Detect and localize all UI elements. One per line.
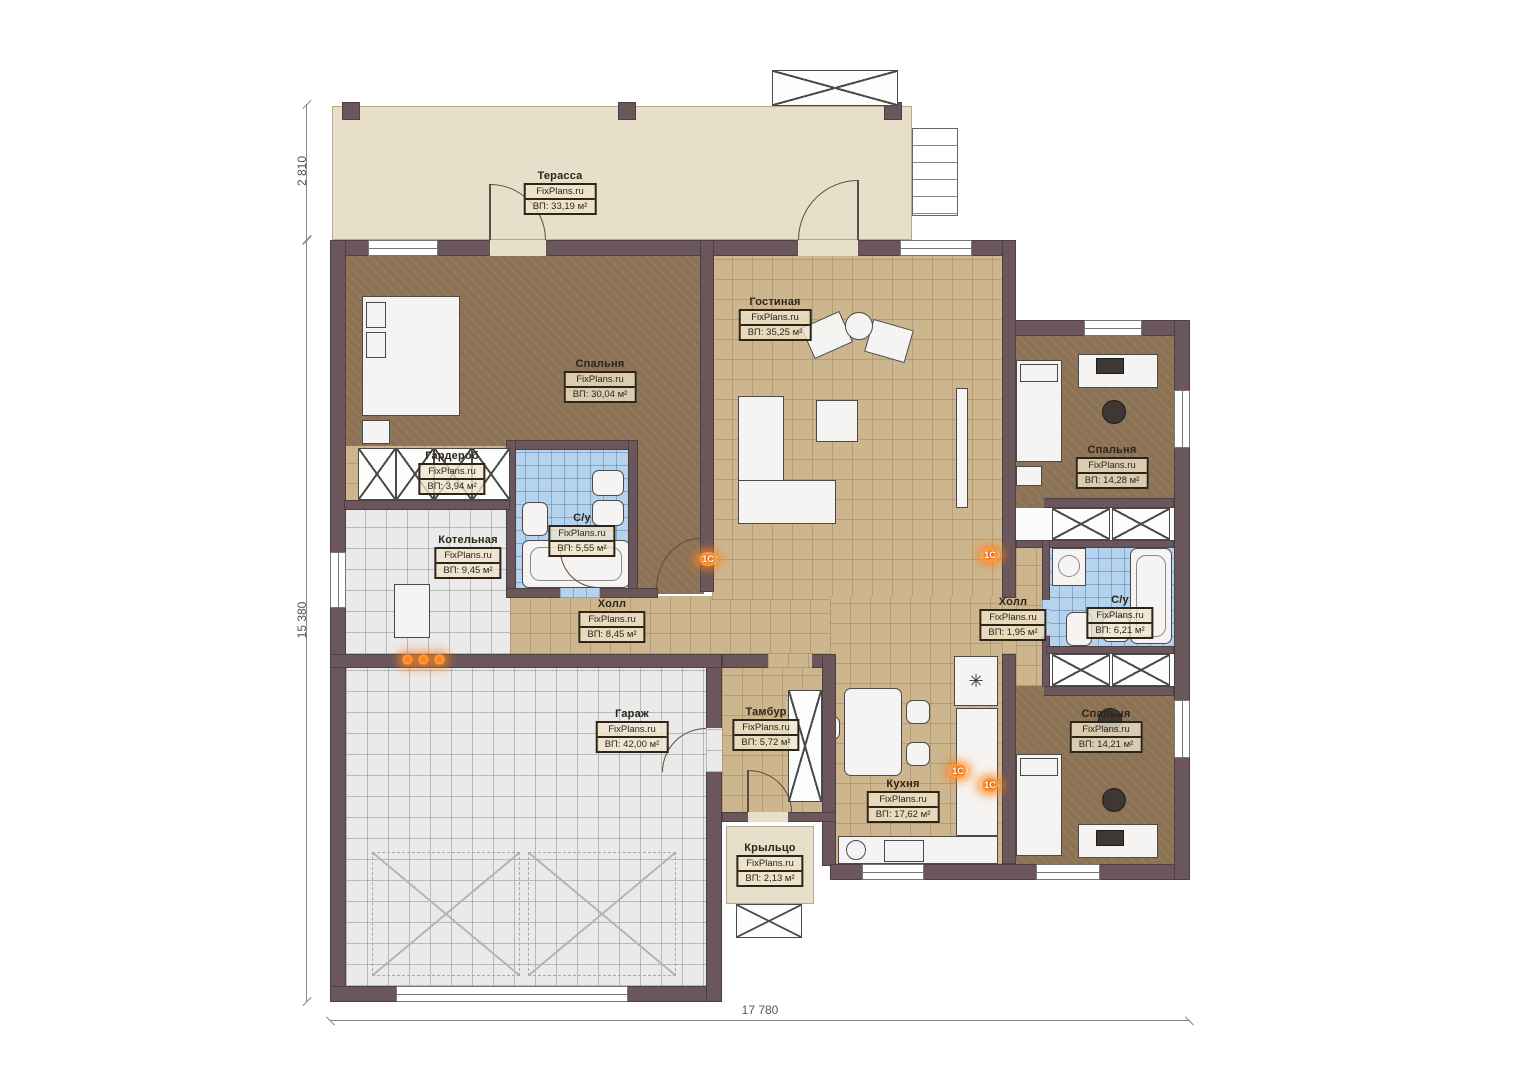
wall-divider-upper [1002,240,1016,598]
room-label-living: Гостиная FixPlans.ru ВП: 35,25 м² [739,296,812,341]
room-area: ВП: 42,00 м² [598,738,667,751]
room-name: Терасса [524,170,597,182]
kitchen-sink [846,840,866,860]
utility-marker: 1С [980,548,1000,562]
dimension-total-height: 15 380 [306,240,307,1002]
washer-drum [1058,555,1080,577]
brand-text: FixPlans.ru [738,857,801,872]
porch-steps [736,904,802,938]
window [330,552,346,608]
wall-bath1-top [506,440,638,450]
front-door-opening [748,812,788,822]
room-name: Гараж [596,708,669,720]
chair [906,742,930,766]
brand-text: FixPlans.ru [598,723,667,738]
room-area: ВП: 1,95 м² [981,626,1044,639]
room-name: Спальня [1070,708,1143,720]
boiler-unit [394,584,430,638]
pillow [366,302,386,328]
pillow [1020,364,1058,382]
parking-mark [528,852,676,976]
utility-marker: 1С [948,764,968,778]
pillow [1020,758,1058,776]
wall-closet-south [1016,540,1174,548]
closet [1052,654,1110,686]
window [1174,700,1190,758]
vestibule-opening [768,654,812,668]
brand-text: FixPlans.ru [526,185,595,200]
room-area: ВП: 5,55 м² [550,542,613,555]
coffee-table [816,400,858,442]
utility-marker [402,654,413,665]
room-label-garage: Гараж FixPlans.ru ВП: 42,00 м² [596,708,669,753]
fridge: ✳ [954,656,998,706]
utility-marker [418,654,429,665]
room-label-hall1: Холл FixPlans.ru ВП: 8,45 м² [578,598,645,643]
tv-panel [956,388,968,508]
brand-text: FixPlans.ru [420,465,483,480]
room-label-bath1: С/у FixPlans.ru ВП: 5,55 м² [548,512,615,557]
wall-bath2-south [1046,646,1174,654]
toilet [522,502,548,536]
bedroom2-door-opening [1016,498,1044,508]
dimension-value: 17 780 [742,1003,779,1017]
room-area: ВП: 6,21 м² [1088,624,1151,637]
wall-vestibule-right [822,654,836,866]
utility-marker [434,654,445,665]
terrace-door-opening [490,240,546,256]
room-name: Крыльцо [736,842,803,854]
terrace-column [342,102,360,120]
room-label-bedroom1: Спальня FixPlans.ru ВП: 30,04 м² [564,358,637,403]
window [900,240,972,256]
room-label-bath2: С/у FixPlans.ru ВП: 6,21 м² [1086,594,1153,639]
room-area: ВП: 33,19 м² [526,200,595,213]
room-area: ВП: 17,62 м² [869,808,938,821]
window [862,864,924,880]
room-name: Холл [979,596,1046,608]
door-leaf [747,770,749,812]
dining-table [844,688,902,776]
wall-garage-top [330,654,722,668]
room-name: Спальня [1076,444,1149,456]
door-leaf [857,180,859,240]
utility-marker: 1С [698,552,718,566]
bedroom3-door-opening [1016,686,1044,696]
room-area: ВП: 3,94 м² [420,480,483,493]
room-name: С/у [1086,594,1153,606]
pillow [366,332,386,358]
wall-garage-right [706,654,722,1002]
wall-living-west [700,240,714,592]
room-area: ВП: 14,28 м² [1078,474,1147,487]
room-label-vestibule: Тамбур FixPlans.ru ВП: 5,72 м² [732,706,799,751]
room-name: Кухня [867,778,940,790]
wall-outer-left [330,240,346,1002]
brand-text: FixPlans.ru [1072,723,1141,738]
terrace-stairs [912,128,958,216]
room-area: ВП: 35,25 м² [741,326,810,339]
door-leaf [489,184,491,240]
brand-text: FixPlans.ru [741,311,810,326]
brand-text: FixPlans.ru [550,527,613,542]
room-label-kitchen: Кухня FixPlans.ru ВП: 17,62 м² [867,778,940,823]
room-name: Котельная [434,534,501,546]
closet [1112,654,1170,686]
office-chair [1102,788,1126,812]
dimension-value: 2 810 [295,116,309,226]
wardrobe-cabinet [358,448,396,500]
garage-door-opening [706,728,722,772]
brand-text: FixPlans.ru [869,793,938,808]
dimension-value: 15 380 [295,565,309,675]
room-label-hall2: Холл FixPlans.ru ВП: 1,95 м² [979,596,1046,641]
nightstand [362,420,390,444]
room-name: Гостиная [739,296,812,308]
closet [1052,508,1110,540]
brand-text: FixPlans.ru [566,373,635,388]
room-name: Спальня [564,358,637,370]
room-label-bedroom2: Спальня FixPlans.ru ВП: 14,28 м² [1076,444,1149,489]
sofa [738,480,836,524]
room-area: ВП: 5,72 м² [734,736,797,749]
floor-plan: Терасса FixPlans.ru ВП: 33,19 м² Спальня… [0,0,1528,1080]
bath1-door-opening [560,588,600,598]
window [1084,320,1142,336]
chair [906,700,930,724]
room-name: С/у [548,512,615,524]
dimension-total-width: 17 780 [330,1020,1190,1021]
brand-text: FixPlans.ru [734,721,797,736]
room-name: Холл [578,598,645,610]
window [1036,864,1100,880]
room-area: ВП: 2,13 м² [738,872,801,885]
terrace-door-opening [798,240,858,256]
room-label-terrace: Терасса FixPlans.ru ВП: 33,19 м² [524,170,597,215]
brand-text: FixPlans.ru [1078,459,1147,474]
room-area: ВП: 14,21 м² [1072,738,1141,751]
brand-text: FixPlans.ru [981,611,1044,626]
wall-divider-lower [1002,654,1016,864]
utility-marker: 1С [980,778,1000,792]
brand-text: FixPlans.ru [1088,609,1151,624]
terrace-column [618,102,636,120]
parking-mark [372,852,520,976]
desk-monitor [1096,358,1124,374]
pergola [772,70,898,106]
dimension-terrace-depth: 2 810 [306,104,307,240]
room-name: Гардероб [418,450,485,462]
office-chair [1102,400,1126,424]
stove [884,840,924,862]
nightstand [1016,466,1042,486]
garage-gate [396,986,628,1002]
room-label-bedroom3: Спальня FixPlans.ru ВП: 14,21 м² [1070,708,1143,753]
window [1174,390,1190,448]
room-label-boiler: Котельная FixPlans.ru ВП: 9,45 м² [434,534,501,579]
brand-text: FixPlans.ru [436,549,499,564]
hall1-floor [510,596,836,654]
wall-bath1-east [628,440,638,598]
room-area: ВП: 9,45 м² [436,564,499,577]
desk-monitor [1096,830,1124,846]
room-label-porch: Крыльцо FixPlans.ru ВП: 2,13 м² [736,842,803,887]
room-label-wardrobe: Гардероб FixPlans.ru ВП: 3,94 м² [418,450,485,495]
room-area: ВП: 8,45 м² [580,628,643,641]
wall-boiler-top [344,500,510,510]
sink [592,470,624,496]
room-name: Тамбур [732,706,799,718]
closet [1112,508,1170,540]
window [368,240,438,256]
brand-text: FixPlans.ru [580,613,643,628]
room-area: ВП: 30,04 м² [566,388,635,401]
round-table [845,312,873,340]
